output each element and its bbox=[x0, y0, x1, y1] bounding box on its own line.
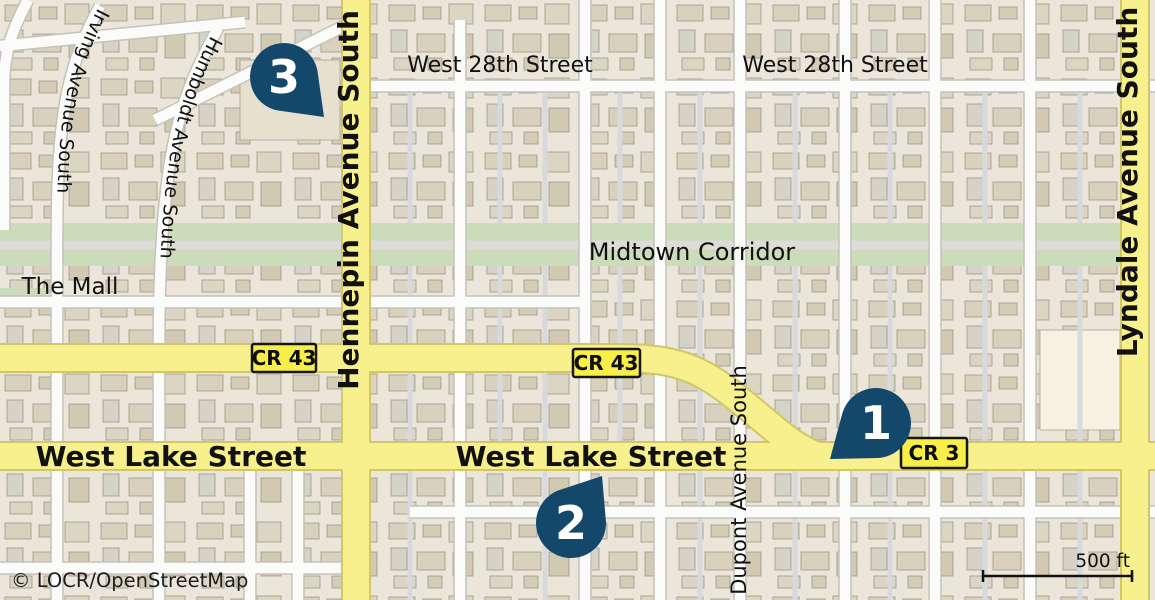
area-label-midtown-corridor: Midtown Corridor bbox=[589, 238, 796, 266]
street-label-west-28th-a: West 28th Street bbox=[407, 53, 593, 78]
map-attribution: © LOCR/OpenStreetMap bbox=[11, 569, 248, 592]
marker-number: 1 bbox=[860, 396, 892, 450]
street-label-dupont: Dupont Avenue South bbox=[727, 365, 751, 595]
shield-label: CR 3 bbox=[909, 441, 960, 465]
street-label-lyndale: Lyndale Avenue South bbox=[1111, 7, 1144, 358]
route-shield-cr3: CR 3 bbox=[901, 438, 967, 468]
street-label-west-lake-b: West Lake Street bbox=[456, 440, 727, 473]
street-label-hennepin: Hennepin Avenue South bbox=[332, 10, 365, 390]
scale-bar-label: 500 ft bbox=[1075, 551, 1130, 572]
marker-number: 3 bbox=[268, 50, 300, 104]
street-label-west-28th-b: West 28th Street bbox=[742, 53, 928, 78]
street-label-the-mall: The Mall bbox=[21, 274, 119, 300]
route-shield-cr43-a: CR 43 bbox=[252, 344, 317, 372]
shield-label: CR 43 bbox=[252, 346, 317, 370]
route-shield-cr43-b: CR 43 bbox=[573, 349, 640, 377]
map-svg: Irving Avenue South Humboldt Avenue Sout… bbox=[0, 0, 1155, 600]
map-canvas[interactable]: Irving Avenue South Humboldt Avenue Sout… bbox=[0, 0, 1155, 600]
shield-label: CR 43 bbox=[574, 351, 639, 375]
marker-number: 2 bbox=[555, 496, 587, 550]
street-label-west-lake-a: West Lake Street bbox=[36, 440, 307, 473]
